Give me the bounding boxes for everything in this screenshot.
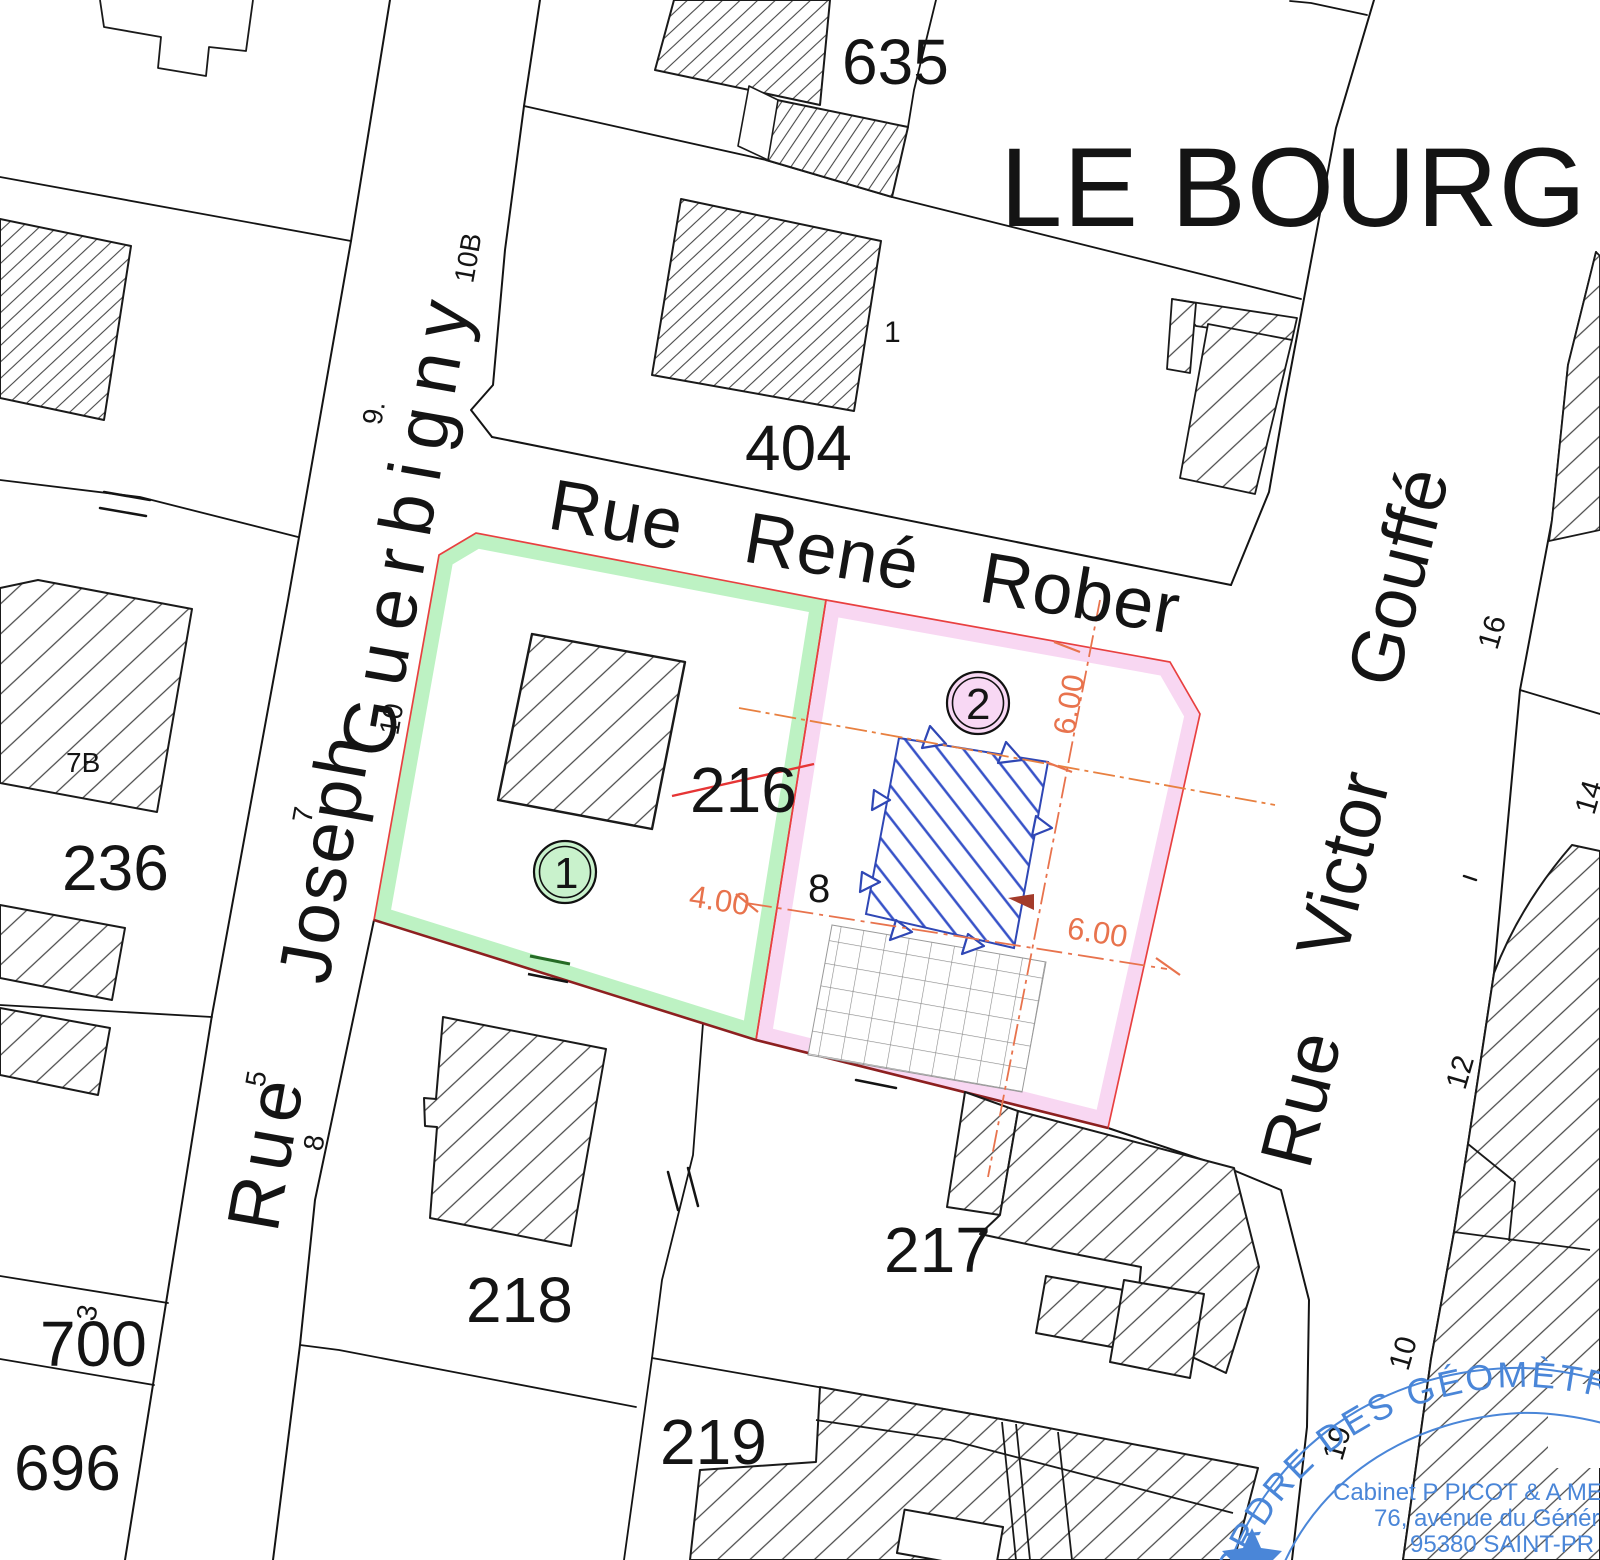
svg-text:2: 2: [966, 680, 990, 729]
svg-text:95380 SAINT-PR: 95380 SAINT-PR: [1410, 1531, 1594, 1558]
svg-text:76, avenue du Général L: 76, avenue du Général L: [1374, 1505, 1600, 1532]
svg-text:LE BOURG: LE BOURG: [1000, 125, 1587, 250]
svg-text:217: 217: [884, 1214, 991, 1286]
svg-text:404: 404: [745, 412, 852, 484]
svg-text:1: 1: [884, 316, 901, 349]
svg-text:218: 218: [466, 1264, 573, 1336]
svg-text:219: 219: [660, 1406, 767, 1478]
svg-text:Cabinet P PICOT & A MERL: Cabinet P PICOT & A MERL: [1333, 1479, 1600, 1506]
svg-text:236: 236: [62, 832, 169, 904]
svg-text:216: 216: [690, 754, 797, 826]
svg-text:7B: 7B: [66, 747, 100, 778]
svg-text:696: 696: [14, 1432, 121, 1504]
svg-text:635: 635: [842, 26, 949, 98]
svg-text:10: 10: [373, 701, 409, 737]
svg-text:8: 8: [808, 867, 830, 911]
svg-text:1: 1: [554, 849, 578, 898]
